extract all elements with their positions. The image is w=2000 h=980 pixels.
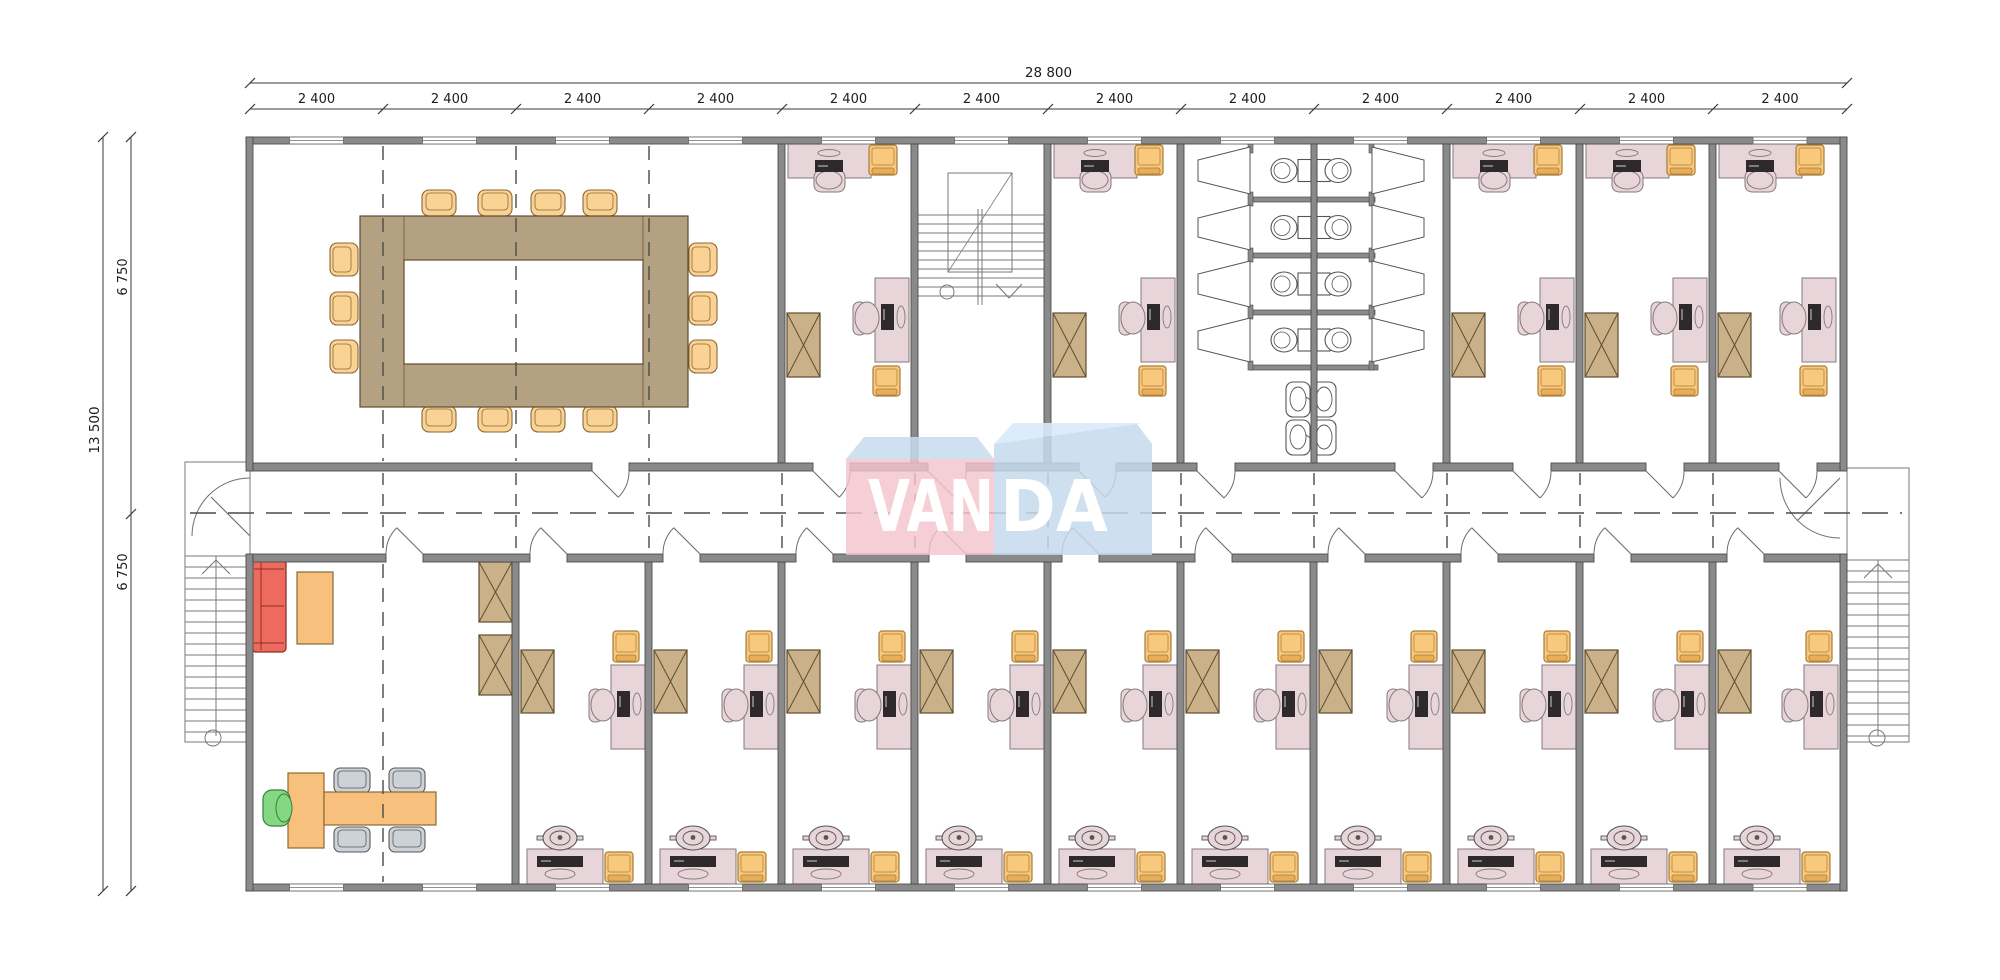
desk-lamp xyxy=(1165,693,1173,715)
kettle-knob xyxy=(1223,835,1228,840)
desk-chair-seat xyxy=(1256,689,1280,721)
conference-chair-icon xyxy=(422,406,456,432)
stall-wall xyxy=(1317,310,1375,315)
visitor-chair-icon xyxy=(334,768,370,793)
conference-chair-icon xyxy=(531,190,565,216)
chair-cushion xyxy=(1799,148,1821,165)
desk-monitor xyxy=(1810,691,1823,717)
kettle-handle xyxy=(1508,836,1514,840)
office-chair-icon xyxy=(738,852,766,882)
desk-chair-seat xyxy=(1782,302,1806,334)
chair-back xyxy=(1148,655,1168,661)
chair-cushion xyxy=(535,409,561,426)
conference-table-hole xyxy=(404,260,643,364)
window-icon xyxy=(1354,884,1408,891)
office-chair-icon xyxy=(1403,852,1431,882)
window-icon xyxy=(1088,137,1142,144)
office-chair-icon xyxy=(1806,631,1832,662)
conference-chair-icon xyxy=(689,292,717,325)
chair-cushion xyxy=(1138,148,1160,165)
office-chair-icon xyxy=(1270,852,1298,882)
keyboard-tray xyxy=(545,869,575,879)
wall xyxy=(246,554,253,891)
desk-monitor xyxy=(1147,304,1160,330)
wall xyxy=(1443,562,1450,884)
desk-chair-seat xyxy=(1520,302,1544,334)
kettle-handle xyxy=(843,836,849,840)
wall xyxy=(1365,554,1461,562)
chair-back xyxy=(1414,655,1434,661)
wall xyxy=(778,144,785,463)
chair-cushion xyxy=(587,409,613,426)
coffee-table xyxy=(297,572,333,644)
office-chair-icon xyxy=(869,145,897,175)
window-icon xyxy=(290,137,344,144)
desk-monitor xyxy=(1415,691,1428,717)
conference-chair-icon xyxy=(689,243,717,276)
office-chair-icon xyxy=(1677,631,1703,662)
kettle-handle xyxy=(670,836,676,840)
chair-cushion xyxy=(338,771,366,788)
dim-label-half: 6 750 xyxy=(116,553,131,590)
toilet-icon xyxy=(1317,159,1351,183)
chair-back xyxy=(1672,875,1694,881)
keyboard-tray xyxy=(811,869,841,879)
cabinet-icon xyxy=(1053,313,1086,377)
chair-back xyxy=(1809,655,1829,661)
cabinet-icon xyxy=(1452,650,1485,713)
chair-back xyxy=(1273,875,1295,881)
desk-monitor xyxy=(1546,304,1559,330)
kettle-handle xyxy=(936,836,942,840)
desk-lamp xyxy=(1749,150,1771,157)
kettle-knob xyxy=(1622,835,1627,840)
dim-label-bay: 2 400 xyxy=(963,92,1000,107)
desk-lamp xyxy=(633,693,641,715)
desk-lamp xyxy=(897,306,905,328)
keyboard-tray xyxy=(1609,869,1639,879)
cabinet-icon xyxy=(1053,650,1086,713)
exterior-stair-right xyxy=(1847,468,1909,746)
dim-label-total: 28 800 xyxy=(1025,65,1072,81)
desk-monitor xyxy=(1679,304,1692,330)
wall xyxy=(1044,144,1051,463)
desk-monitor xyxy=(1149,691,1162,717)
office-chair-icon xyxy=(1534,145,1562,175)
chair-back xyxy=(1799,168,1821,174)
dim-label-bay: 2 400 xyxy=(830,92,867,107)
office-chair-icon xyxy=(1671,366,1698,396)
chair-cushion xyxy=(333,296,351,321)
window-icon xyxy=(1487,137,1541,144)
kettle-knob xyxy=(824,835,829,840)
conference-chair-icon xyxy=(478,406,512,432)
exterior-stair-left xyxy=(185,462,250,746)
kettle-handle xyxy=(577,836,583,840)
kettle-handle xyxy=(1774,836,1780,840)
toilet-tank xyxy=(1298,273,1311,295)
reception-desk xyxy=(288,773,324,848)
desk-lamp xyxy=(1032,693,1040,715)
wall xyxy=(645,562,652,884)
toilet-bowl-inner xyxy=(1274,220,1290,236)
wall xyxy=(1576,144,1583,463)
window-icon xyxy=(822,137,876,144)
toilet-bowl-inner xyxy=(1332,276,1348,292)
office-chair-icon xyxy=(1139,366,1166,396)
office-chair-icon xyxy=(1145,631,1171,662)
wall xyxy=(1443,144,1450,463)
dim-label-bay: 2 400 xyxy=(431,92,468,107)
dim-label-bay: 2 400 xyxy=(1628,92,1665,107)
office-chair-icon xyxy=(1796,145,1824,175)
chair-cushion xyxy=(1015,634,1035,652)
wall xyxy=(1232,554,1328,562)
kettle-knob xyxy=(957,835,962,840)
chair-back xyxy=(1670,168,1692,174)
stair-landing xyxy=(185,462,250,556)
chair-cushion xyxy=(1809,634,1829,652)
chair-back xyxy=(749,655,769,661)
dim-label-bay: 2 400 xyxy=(697,92,734,107)
chair-cushion xyxy=(1148,634,1168,652)
window-icon xyxy=(556,137,610,144)
stall-wall xyxy=(1317,253,1375,258)
chair-cushion xyxy=(1140,855,1162,872)
wall xyxy=(1498,554,1594,562)
reception-table xyxy=(324,792,436,825)
dim-label-bay: 2 400 xyxy=(1362,92,1399,107)
stair-landing xyxy=(1847,468,1909,560)
dim-label-total-left: 13 500 xyxy=(87,406,103,453)
logo-text-van: VAN xyxy=(868,465,994,548)
chair-cushion xyxy=(874,855,896,872)
wall xyxy=(246,137,1847,144)
chair-back xyxy=(1547,655,1567,661)
wall xyxy=(911,562,918,884)
kettle-knob xyxy=(691,835,696,840)
chair-back xyxy=(1138,168,1160,174)
desk-lamp xyxy=(1564,693,1572,715)
desk-chair-seat xyxy=(1655,689,1679,721)
chair-back xyxy=(1674,389,1695,395)
keyboard-tray xyxy=(1210,869,1240,879)
toilet-tank xyxy=(1298,160,1311,182)
desk-lamp xyxy=(1824,306,1832,328)
chair-back xyxy=(1406,875,1428,881)
chair-cushion xyxy=(535,193,561,210)
chair-cushion xyxy=(692,247,710,272)
cabinet-icon xyxy=(1452,313,1485,377)
chair-back xyxy=(741,875,763,881)
toilet-bowl-inner xyxy=(1332,220,1348,236)
window-icon xyxy=(1487,884,1541,891)
chair-back xyxy=(1541,389,1562,395)
chair-cushion xyxy=(876,369,897,386)
toilet-icon xyxy=(1271,272,1311,296)
floor-plan-canvas: 28 8002 4002 4002 4002 4002 4002 4002 40… xyxy=(0,0,2000,980)
window-icon xyxy=(1620,137,1674,144)
chair-cushion xyxy=(1672,855,1694,872)
wall xyxy=(1044,562,1051,884)
chair-cushion xyxy=(1670,148,1692,165)
wall xyxy=(1764,554,1840,562)
chair-cushion xyxy=(1805,855,1827,872)
sink-basin xyxy=(1316,387,1332,411)
sink-basin xyxy=(1316,425,1332,449)
kettle-handle xyxy=(1601,836,1607,840)
conference-chair-icon xyxy=(330,340,358,373)
office-chair-icon xyxy=(1538,366,1565,396)
desk-chair-seat xyxy=(1121,302,1145,334)
stall-wall xyxy=(1253,253,1311,258)
office-chair-icon xyxy=(1800,366,1827,396)
wall xyxy=(1433,463,1513,471)
desk-lamp xyxy=(1084,150,1106,157)
keyboard-tray xyxy=(1343,869,1373,879)
desk-lamp xyxy=(1826,693,1834,715)
wall xyxy=(253,554,386,562)
wall xyxy=(1099,554,1195,562)
window-icon xyxy=(423,137,477,144)
kettle-knob xyxy=(558,835,563,840)
wall xyxy=(246,137,253,471)
office-chair-icon xyxy=(879,631,905,662)
desk-lamp xyxy=(766,693,774,715)
toilet-icon xyxy=(1271,328,1311,352)
desk-monitor xyxy=(1681,691,1694,717)
chair-cushion xyxy=(1273,855,1295,872)
cabinet-icon xyxy=(479,635,512,695)
floor-plan-page: 28 8002 4002 4002 4002 4002 4002 4002 40… xyxy=(0,0,2000,980)
toilet-icon xyxy=(1271,159,1311,183)
wall xyxy=(1709,562,1716,884)
kettle-handle xyxy=(1109,836,1115,840)
office-chair-icon xyxy=(613,631,639,662)
desk-chair-seat xyxy=(816,171,842,189)
desk-monitor xyxy=(1282,691,1295,717)
wall xyxy=(1576,562,1583,884)
desk-lamp xyxy=(1697,693,1705,715)
chair-back xyxy=(1803,389,1824,395)
toilet-bowl-inner xyxy=(1274,163,1290,179)
office-chair-icon xyxy=(1802,852,1830,882)
kettle-handle xyxy=(1375,836,1381,840)
wall xyxy=(1235,463,1395,471)
chair-cushion xyxy=(882,634,902,652)
chair-cushion xyxy=(393,830,421,847)
keyboard-tray xyxy=(1077,869,1107,879)
window-icon xyxy=(689,137,743,144)
window-icon xyxy=(1753,137,1807,144)
window-icon xyxy=(1088,884,1142,891)
kettle-handle xyxy=(1734,836,1740,840)
desk-lamp xyxy=(899,693,907,715)
dim-label-bay: 2 400 xyxy=(1495,92,1532,107)
office-chair-icon xyxy=(873,366,900,396)
chair-cushion xyxy=(333,247,351,272)
chair-back xyxy=(876,389,897,395)
cabinet-icon xyxy=(787,650,820,713)
wall xyxy=(1840,137,1847,471)
chair-back xyxy=(1007,875,1029,881)
toilet-bowl-inner xyxy=(1332,163,1348,179)
office-chair-icon xyxy=(605,852,633,882)
chair-cushion xyxy=(393,771,421,788)
wall xyxy=(1177,562,1184,884)
stall-wall xyxy=(1317,197,1375,202)
cabinet-icon xyxy=(654,650,687,713)
kettle-handle xyxy=(710,836,716,840)
chair-back xyxy=(882,655,902,661)
stall-wall xyxy=(1253,197,1311,202)
cabinet-icon xyxy=(1319,650,1352,713)
toilet-bowl-inner xyxy=(1332,332,1348,348)
chair-cushion xyxy=(1142,369,1163,386)
wall xyxy=(1817,463,1840,471)
wall xyxy=(833,554,929,562)
office-chair-icon xyxy=(1278,631,1304,662)
cabinet-icon xyxy=(1585,313,1618,377)
kettle-handle xyxy=(976,836,982,840)
chair-cushion xyxy=(1803,369,1824,386)
chair-cushion xyxy=(1406,855,1428,872)
chair-cushion xyxy=(1541,369,1562,386)
window-icon xyxy=(1620,884,1674,891)
wall xyxy=(778,562,785,884)
keyboard-tray xyxy=(1742,869,1772,879)
desk-lamp xyxy=(1163,306,1171,328)
conference-chair-icon xyxy=(330,292,358,325)
desk-chair-seat xyxy=(1481,171,1507,189)
chair-cushion xyxy=(426,193,452,210)
desk-chair-seat xyxy=(1784,689,1808,721)
sink-icon xyxy=(1286,420,1312,455)
window-icon xyxy=(955,884,1009,891)
conference-chair-icon xyxy=(422,190,456,216)
dim-label-bay: 2 400 xyxy=(564,92,601,107)
keyboard-tray xyxy=(678,869,708,879)
kettle-handle xyxy=(803,836,809,840)
desk-lamp xyxy=(818,150,840,157)
chair-cushion xyxy=(1281,634,1301,652)
toilet-bowl-inner xyxy=(1274,332,1290,348)
conference-chair-icon xyxy=(531,406,565,432)
desk-monitor xyxy=(1548,691,1561,717)
desk-chair-seat xyxy=(1082,171,1108,189)
chair-cushion xyxy=(1537,148,1559,165)
wall xyxy=(253,463,592,471)
chair-cushion xyxy=(1414,634,1434,652)
wall xyxy=(1631,554,1727,562)
toilet-icon xyxy=(1317,272,1351,296)
desk-monitor xyxy=(750,691,763,717)
conference-chair-icon xyxy=(583,190,617,216)
office-chair-icon xyxy=(871,852,899,882)
kettle-handle xyxy=(1069,836,1075,840)
wall xyxy=(1311,144,1317,463)
desk-chair-seat xyxy=(1389,689,1413,721)
chair-back xyxy=(1142,389,1163,395)
window-icon xyxy=(556,884,610,891)
manager-chair-icon xyxy=(263,790,292,826)
wall xyxy=(567,554,663,562)
dim-label-bay: 2 400 xyxy=(298,92,335,107)
desk-chair-seat xyxy=(591,689,615,721)
kettle-handle xyxy=(1242,836,1248,840)
wall xyxy=(1709,144,1716,463)
conference-chair-icon xyxy=(689,340,717,373)
chair-cushion xyxy=(338,830,366,847)
office-chair-icon xyxy=(1012,631,1038,662)
chair-back xyxy=(872,168,894,174)
window-icon xyxy=(1354,137,1408,144)
cabinet-icon xyxy=(1585,650,1618,713)
desk-lamp xyxy=(1431,693,1439,715)
desk-lamp xyxy=(1562,306,1570,328)
wall xyxy=(423,554,530,562)
toilet-tank xyxy=(1298,329,1311,351)
conference-chair-icon xyxy=(330,243,358,276)
kettle-knob xyxy=(1489,835,1494,840)
visitor-chair-icon xyxy=(334,827,370,852)
cabinet-icon xyxy=(1718,650,1751,713)
desk-monitor xyxy=(883,691,896,717)
chair-back xyxy=(1805,875,1827,881)
wall xyxy=(1840,554,1847,891)
chair-cushion xyxy=(608,855,630,872)
kettle-handle xyxy=(1335,836,1341,840)
window-icon xyxy=(955,137,1009,144)
chair-back xyxy=(1539,875,1561,881)
desk-lamp xyxy=(1298,693,1306,715)
office-chair-icon xyxy=(1137,852,1165,882)
desk-chair-seat xyxy=(724,689,748,721)
office-chair-icon xyxy=(746,631,772,662)
visitor-chair-icon xyxy=(389,768,425,793)
desk-chair-seat xyxy=(857,689,881,721)
wall xyxy=(1310,562,1317,884)
wall xyxy=(700,554,796,562)
conference-room xyxy=(330,190,717,432)
chair-back xyxy=(1281,655,1301,661)
desk-lamp xyxy=(1695,306,1703,328)
chair-back xyxy=(1537,168,1559,174)
window-icon xyxy=(822,884,876,891)
chair-cushion xyxy=(741,855,763,872)
desk-chair-seat xyxy=(1522,689,1546,721)
desk-monitor xyxy=(1808,304,1821,330)
chair-cushion xyxy=(482,409,508,426)
window-icon xyxy=(423,884,477,891)
toilet-icon xyxy=(1317,216,1351,240)
chair-cushion xyxy=(872,148,894,165)
kettle-handle xyxy=(1202,836,1208,840)
window-icon xyxy=(1221,884,1275,891)
dim-label-bay: 2 400 xyxy=(1096,92,1133,107)
wall xyxy=(1177,144,1184,463)
cabinet-icon xyxy=(1186,650,1219,713)
kettle-knob xyxy=(1090,835,1095,840)
wall xyxy=(246,884,1847,891)
dim-label-half: 6 750 xyxy=(116,258,131,295)
toilet-bowl-inner xyxy=(1274,276,1290,292)
kettle-knob xyxy=(1755,835,1760,840)
kettle-handle xyxy=(1468,836,1474,840)
dim-label-bay: 2 400 xyxy=(1229,92,1266,107)
chair-back xyxy=(608,875,630,881)
chair-back xyxy=(616,655,636,661)
